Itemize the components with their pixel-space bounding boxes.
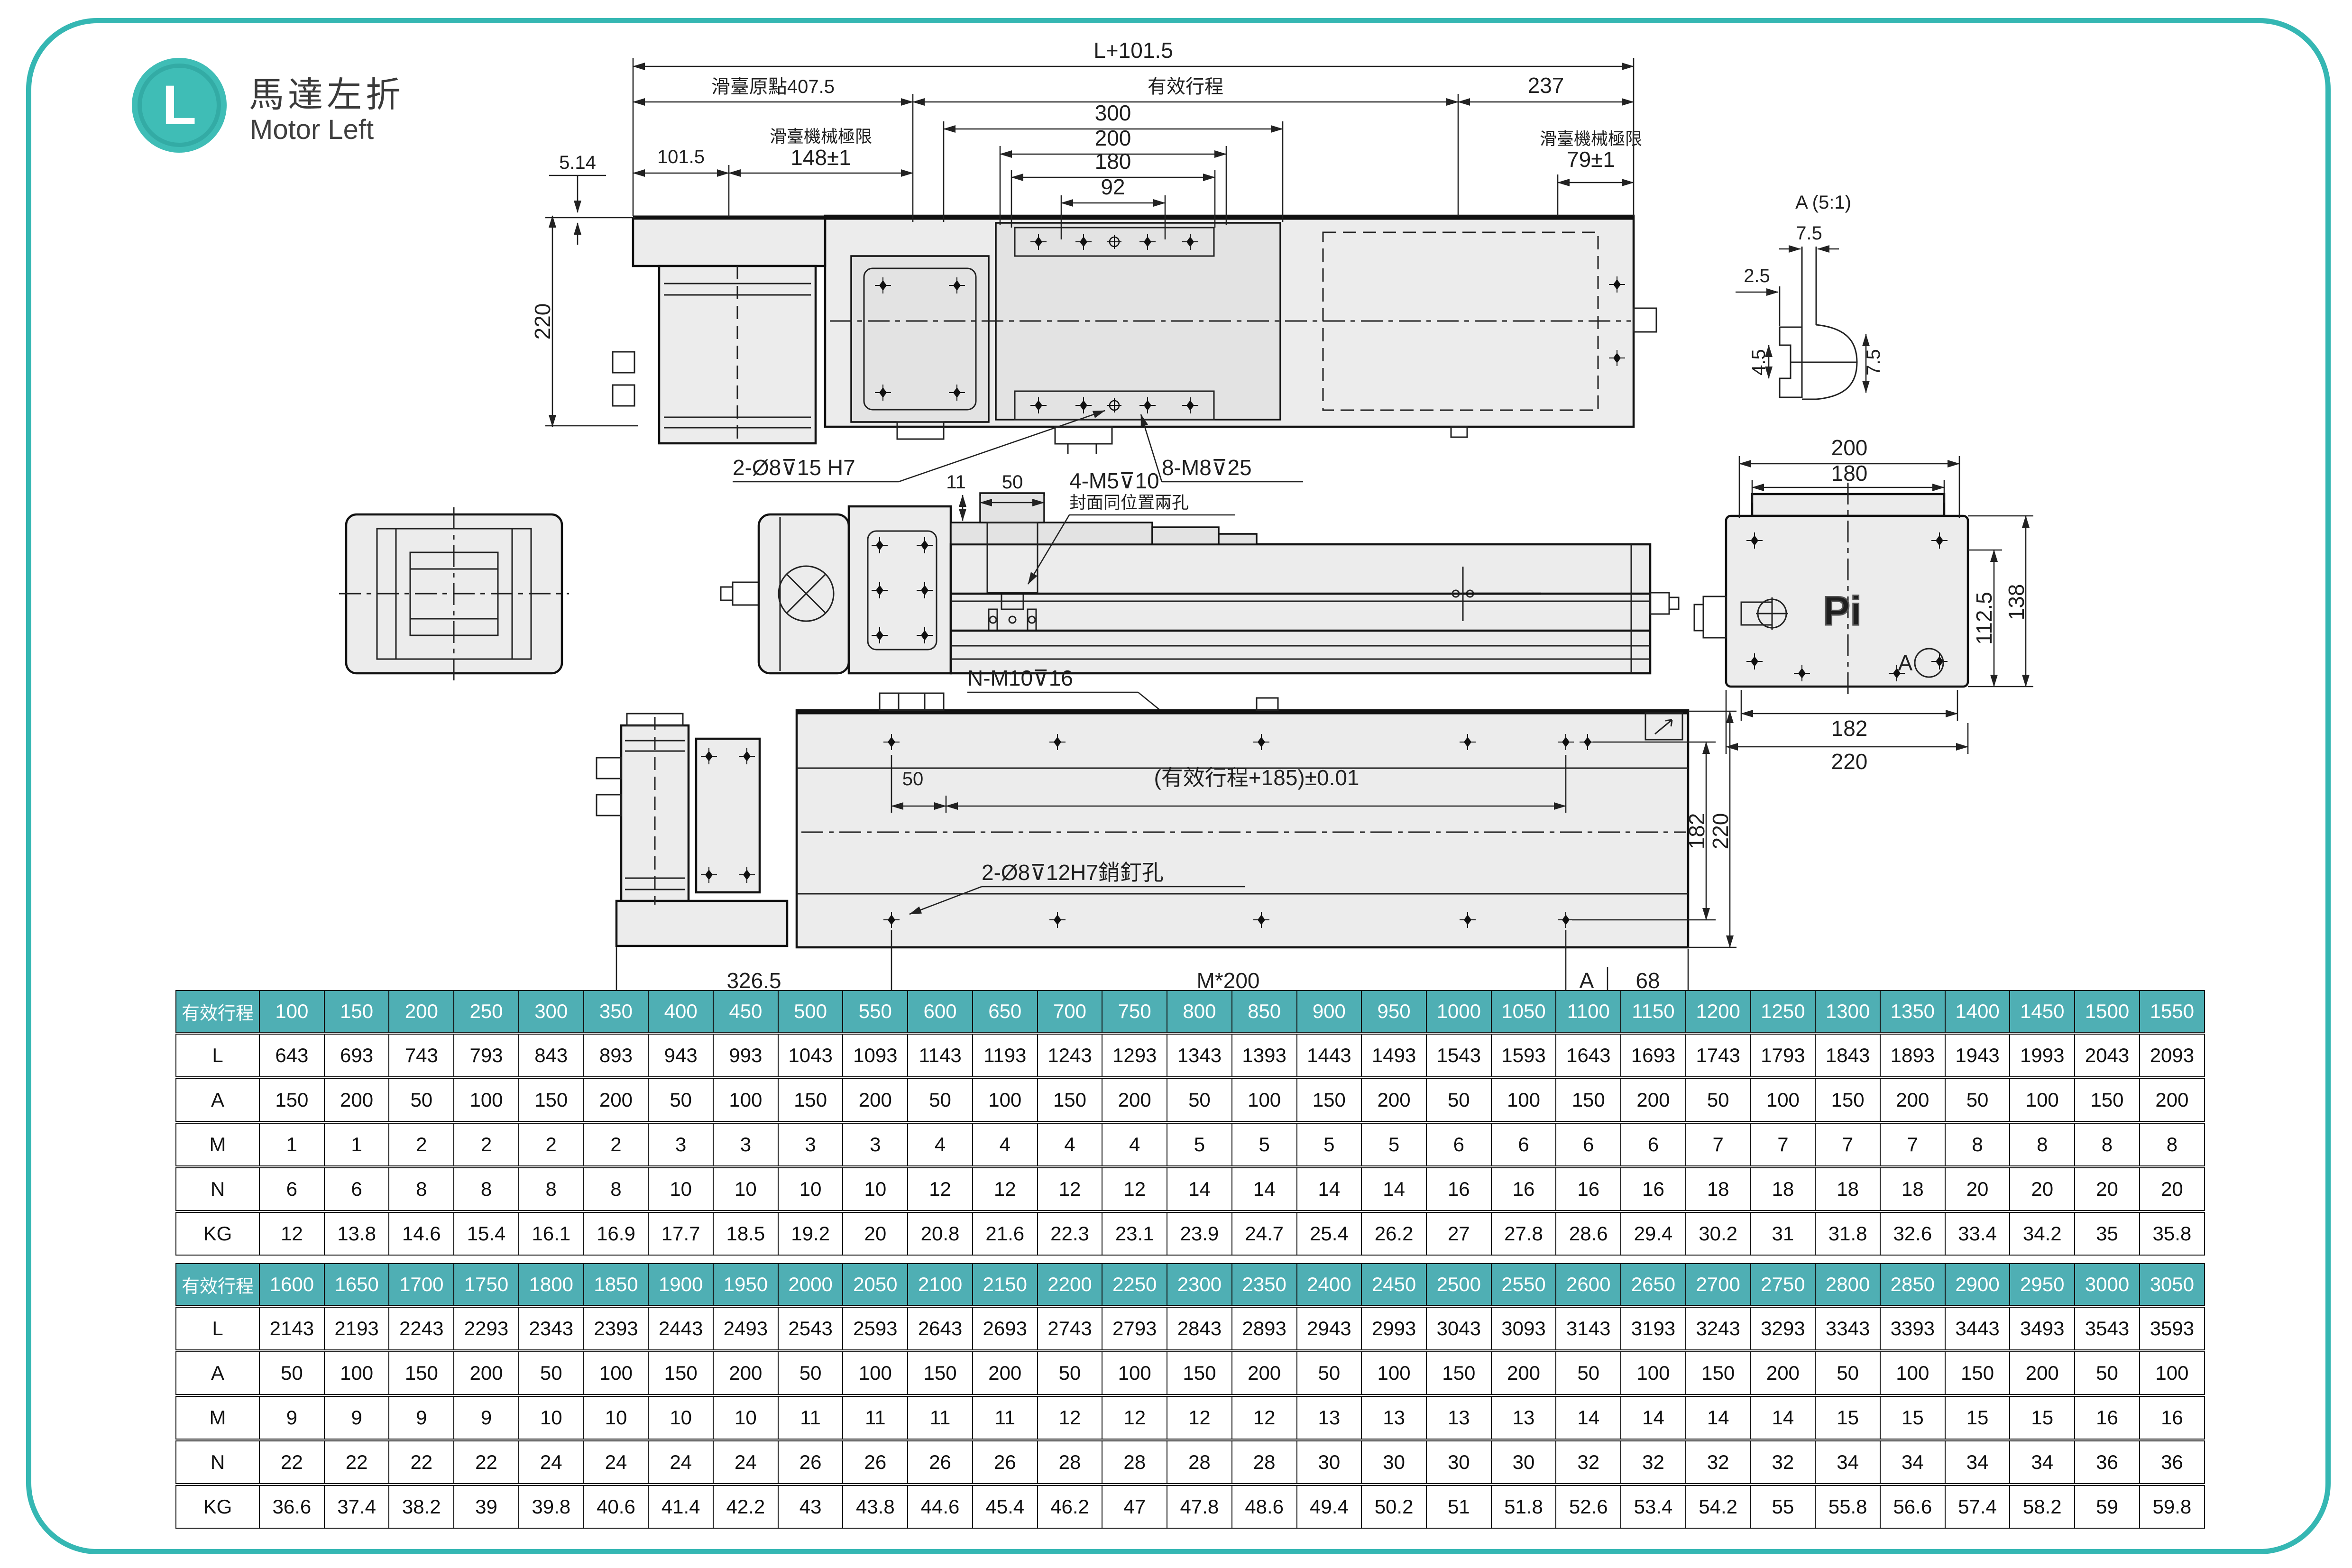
table-cell: 1593: [1491, 1033, 1556, 1078]
top-view: L+101.5 滑臺原點407.5 有效行程 237 300 200 180 9…: [530, 38, 1656, 482]
table-cell: 1443: [1297, 1033, 1362, 1078]
row-label: KG: [176, 1211, 259, 1255]
stroke-column-header: 1050: [1491, 990, 1556, 1033]
stroke-column-header: 1700: [389, 1264, 454, 1306]
end-dim-180: 180: [1831, 461, 1868, 486]
table-cell: 150: [259, 1078, 324, 1122]
table-cell: 43.8: [843, 1485, 908, 1528]
table-cell: 26: [973, 1440, 1038, 1485]
stroke-column-header: 850: [1232, 990, 1297, 1033]
table-cell: 10: [648, 1395, 713, 1440]
stroke-column-header: 100: [259, 990, 324, 1033]
table-cell: 1193: [973, 1033, 1038, 1078]
table-cell: 3493: [2010, 1306, 2075, 1351]
table-cell: 18: [1815, 1167, 1880, 1211]
stroke-column-header: 400: [648, 990, 713, 1033]
table-cell: 25.4: [1297, 1211, 1362, 1255]
table-cell: 20: [2010, 1167, 2075, 1211]
table-cell: 23.9: [1167, 1211, 1232, 1255]
table-cell: 150: [1426, 1351, 1491, 1395]
stroke-table-2: 有效行程160016501700175018001850190019502000…: [175, 1263, 2205, 1529]
table-cell: 12: [908, 1167, 973, 1211]
table-cell: 34: [1945, 1440, 2010, 1485]
label-cover-note: 封面同位置兩孔: [1069, 493, 1189, 512]
stroke-column-header: 1250: [1751, 990, 1816, 1033]
table-cell: 32: [1621, 1440, 1686, 1485]
table-cell: 50: [1815, 1351, 1880, 1395]
table-cell: 24.7: [1232, 1211, 1297, 1255]
table-cell: 993: [713, 1033, 778, 1078]
table-cell: 30.2: [1686, 1211, 1751, 1255]
stroke-column-header: 900: [1297, 990, 1362, 1033]
table-cell: 100: [843, 1351, 908, 1395]
table-cell: 200: [1232, 1351, 1297, 1395]
table-cell: 50: [389, 1078, 454, 1122]
dim-180: 180: [1095, 149, 1131, 174]
table-cell: 200: [1621, 1078, 1686, 1122]
table-cell: 13: [1361, 1395, 1426, 1440]
table-cell: 2843: [1167, 1306, 1232, 1351]
detail-a-title: A (5:1): [1795, 192, 1851, 213]
table-cell: 150: [519, 1078, 584, 1122]
label-pin-holes-bottom: 2-Ø8⊽12H7銷釘孔: [982, 860, 1164, 885]
table-cell: 50: [648, 1078, 713, 1122]
table-cell: 13: [1297, 1395, 1362, 1440]
table-cell: 6: [324, 1167, 389, 1211]
table-cell: 10: [713, 1167, 778, 1211]
table-cell: 39.8: [519, 1485, 584, 1528]
stroke-column-header: 2900: [1945, 1264, 2010, 1306]
table-cell: 50: [519, 1351, 584, 1395]
table-cell: 26: [843, 1440, 908, 1485]
table-cell: 1793: [1751, 1033, 1816, 1078]
table-cell: 1093: [843, 1033, 908, 1078]
stroke-column-header: 1850: [584, 1264, 649, 1306]
table-cell: 2: [584, 1122, 649, 1167]
limit-label-right: 滑臺機械極限: [1540, 129, 1642, 148]
dim-effective-stroke: 有效行程: [1148, 76, 1223, 97]
table-cell: 2193: [324, 1306, 389, 1351]
table-cell: 643: [259, 1033, 324, 1078]
table-cell: 27: [1426, 1211, 1491, 1255]
table-cell: 14: [1167, 1167, 1232, 1211]
table-cell: 2443: [648, 1306, 713, 1351]
table-cell: 8: [2075, 1122, 2140, 1167]
stroke-column-header: 950: [1361, 990, 1426, 1033]
table-cell: 16: [2140, 1395, 2205, 1440]
table-cell: 8: [454, 1167, 519, 1211]
end-dim-200: 200: [1831, 435, 1868, 460]
table-cell: 15: [1815, 1395, 1880, 1440]
table-cell: 15: [2010, 1395, 2075, 1440]
table-cell: 100: [1361, 1351, 1426, 1395]
table-row: L214321932243229323432393244324932543259…: [176, 1306, 2205, 1351]
table-cell: 7: [1815, 1122, 1880, 1167]
table-row: L643693743793843893943993104310931143119…: [176, 1033, 2205, 1078]
table-cell: 18: [1686, 1167, 1751, 1211]
table-cell: 2943: [1297, 1306, 1362, 1351]
table-cell: 200: [584, 1078, 649, 1122]
table-cell: 21.6: [973, 1211, 1038, 1255]
stroke-column-header: 1650: [324, 1264, 389, 1306]
table-cell: 100: [1621, 1351, 1686, 1395]
table-cell: 11: [908, 1395, 973, 1440]
table-cell: 6: [1621, 1122, 1686, 1167]
table-cell: 100: [973, 1078, 1038, 1122]
table-cell: 9: [259, 1395, 324, 1440]
table-cell: 35.8: [2140, 1211, 2205, 1255]
table-cell: 3593: [2140, 1306, 2205, 1351]
table-cell: 40.6: [584, 1485, 649, 1528]
table-cell: 200: [2010, 1351, 2075, 1395]
label-screw-holes: 8-M8⊽25: [1162, 455, 1252, 480]
table-cell: 50: [1945, 1078, 2010, 1122]
stroke-column-header: 2950: [2010, 1264, 2075, 1306]
table-cell: 200: [324, 1078, 389, 1122]
table-cell: 30: [1361, 1440, 1426, 1485]
table-cell: 50.2: [1361, 1485, 1426, 1528]
table-cell: 39: [454, 1485, 519, 1528]
stroke-column-header: 2600: [1556, 1264, 1621, 1306]
table-cell: 6: [259, 1167, 324, 1211]
table-cell: 47: [1102, 1485, 1167, 1528]
table-cell: 57.4: [1945, 1485, 2010, 1528]
table-cell: 3343: [1815, 1306, 1880, 1351]
stroke-column-header: 2750: [1751, 1264, 1816, 1306]
detail-dim-2-5: 2.5: [1744, 266, 1770, 286]
table-cell: 28: [1232, 1440, 1297, 1485]
stroke-column-header: 800: [1167, 990, 1232, 1033]
table-cell: 150: [2075, 1078, 2140, 1122]
table-cell: 3093: [1491, 1306, 1556, 1351]
table-cell: 100: [1751, 1078, 1816, 1122]
motor-end-view: [339, 507, 569, 680]
table-cell: 3: [648, 1122, 713, 1167]
detail-a: A (5:1) 7.5 2.5 4.5 7.5: [1736, 192, 1884, 399]
table-cell: 893: [584, 1033, 649, 1078]
motor-bracket-bottom: [696, 739, 760, 892]
table-cell: 100: [1232, 1078, 1297, 1122]
stroke-column-header: 2300: [1167, 1264, 1232, 1306]
stroke-column-header: 500: [778, 990, 843, 1033]
table-cell: 22: [324, 1440, 389, 1485]
table-cell: 150: [1556, 1078, 1621, 1122]
row-label: M: [176, 1122, 259, 1167]
table-cell: 6: [1556, 1122, 1621, 1167]
table-cell: 1143: [908, 1033, 973, 1078]
table-cell: 37.4: [324, 1485, 389, 1528]
stroke-column-header: 1200: [1686, 990, 1751, 1033]
table-cell: 16: [1491, 1167, 1556, 1211]
table-cell: 11: [973, 1395, 1038, 1440]
dim-slide-origin: 滑臺原點407.5: [711, 76, 835, 97]
table-cell: 38.2: [389, 1485, 454, 1528]
table-cell: 54.2: [1686, 1485, 1751, 1528]
end-dim-182: 182: [1831, 716, 1868, 741]
table-cell: 36: [2075, 1440, 2140, 1485]
table-cell: 150: [1038, 1078, 1102, 1122]
table-cell: 11: [778, 1395, 843, 1440]
stroke-column-header: 2700: [1686, 1264, 1751, 1306]
table-cell: 20: [2140, 1167, 2205, 1211]
stroke-column-header: 2050: [843, 1264, 908, 1306]
table-cell: 30: [1297, 1440, 1362, 1485]
table-cell: 50: [1167, 1078, 1232, 1122]
table-cell: 50: [1556, 1351, 1621, 1395]
table-cell: 18.5: [713, 1211, 778, 1255]
table-cell: 150: [778, 1078, 843, 1122]
table-cell: 5: [1167, 1122, 1232, 1167]
table-cell: 3043: [1426, 1306, 1491, 1351]
table-cell: 2093: [2140, 1033, 2205, 1078]
table-cell: 100: [2140, 1351, 2205, 1395]
motor-flange: [633, 219, 825, 266]
table-cell: 9: [454, 1395, 519, 1440]
table-cell: 3193: [1621, 1306, 1686, 1351]
stroke-column-header: 2250: [1102, 1264, 1167, 1306]
table-cell: 20: [2075, 1167, 2140, 1211]
stroke-header-label: 有效行程: [176, 990, 259, 1033]
table-cell: 100: [454, 1078, 519, 1122]
table-cell: 100: [1102, 1351, 1167, 1395]
detail-dim-4-5: 4.5: [1748, 349, 1769, 376]
stroke-column-header: 1350: [1880, 990, 1945, 1033]
stroke-column-header: 1800: [519, 1264, 584, 1306]
table-cell: 4: [973, 1122, 1038, 1167]
pi-logo: Pi: [1823, 588, 1861, 634]
table-cell: 16: [1426, 1167, 1491, 1211]
bottom-view: N-M10⊽16 50 (有效行程+185)±0.01: [597, 666, 1736, 1006]
stroke-column-header: 1300: [1815, 990, 1880, 1033]
table-cell: 50: [908, 1078, 973, 1122]
table-cell: 1293: [1102, 1033, 1167, 1078]
table-cell: 100: [324, 1351, 389, 1395]
table-cell: 34.2: [2010, 1211, 2075, 1255]
table-cell: 10: [648, 1167, 713, 1211]
dim-50-mid: 50: [1002, 472, 1023, 493]
table-cell: 46.2: [1038, 1485, 1102, 1528]
table-cell: 10: [584, 1395, 649, 1440]
table-cell: 16.9: [584, 1211, 649, 1255]
table-cell: 16: [2075, 1395, 2140, 1440]
table-cell: 12: [259, 1211, 324, 1255]
table-cell: 1843: [1815, 1033, 1880, 1078]
stroke-column-header: 250: [454, 990, 519, 1033]
table-cell: 20: [1945, 1167, 2010, 1211]
stroke-column-header: 1150: [1621, 990, 1686, 1033]
table-cell: 3243: [1686, 1306, 1751, 1351]
table-cell: 3: [843, 1122, 908, 1167]
dim-overall-length: L+101.5: [1093, 38, 1173, 63]
table-cell: 8: [1945, 1122, 2010, 1167]
dim-79: 79±1: [1567, 147, 1615, 172]
table-cell: 14: [1556, 1395, 1621, 1440]
table-cell: 18: [1751, 1167, 1816, 1211]
detail-a-marker: A: [1898, 651, 1913, 675]
table-cell: 5: [1297, 1122, 1362, 1167]
table-cell: 51.8: [1491, 1485, 1556, 1528]
stroke-header-label: 有效行程: [176, 1264, 259, 1306]
dim-5-14: 5.14: [559, 152, 596, 173]
table-cell: 55.8: [1815, 1485, 1880, 1528]
table-cell: 55: [1751, 1485, 1816, 1528]
table-cell: 2393: [584, 1306, 649, 1351]
table-cell: 12: [1232, 1395, 1297, 1440]
table-cell: 2: [519, 1122, 584, 1167]
table-cell: 2893: [1232, 1306, 1297, 1351]
stroke-column-header: 2150: [973, 1264, 1038, 1306]
stroke-column-header: 2800: [1815, 1264, 1880, 1306]
table-cell: 8: [2140, 1122, 2205, 1167]
table-cell: 32: [1751, 1440, 1816, 1485]
rail-body: [951, 544, 1650, 673]
table-cell: 50: [1686, 1078, 1751, 1122]
table-cell: 1493: [1361, 1033, 1426, 1078]
table-cell: 1993: [2010, 1033, 2075, 1078]
table-cell: 28.6: [1556, 1211, 1621, 1255]
table-cell: 150: [389, 1351, 454, 1395]
table-cell: 18: [1880, 1167, 1945, 1211]
table-cell: 28: [1038, 1440, 1102, 1485]
table-cell: 11: [843, 1395, 908, 1440]
table-cell: 17.7: [648, 1211, 713, 1255]
table-cell: 22: [259, 1440, 324, 1485]
dim-300: 300: [1095, 101, 1131, 125]
table-cell: 2343: [519, 1306, 584, 1351]
stroke-column-header: 2650: [1621, 1264, 1686, 1306]
row-label: N: [176, 1440, 259, 1485]
table-cell: 42.2: [713, 1485, 778, 1528]
table-cell: 27.8: [1491, 1211, 1556, 1255]
table-cell: 59: [2075, 1485, 2140, 1528]
stroke-column-header: 3050: [2140, 1264, 2205, 1306]
dim-237: 237: [1528, 73, 1564, 98]
table-cell: 15: [1945, 1395, 2010, 1440]
table-cell: 24: [713, 1440, 778, 1485]
table-cell: 48.6: [1232, 1485, 1297, 1528]
table-cell: 2493: [713, 1306, 778, 1351]
table-cell: 200: [1880, 1078, 1945, 1122]
stroke-column-header: 2100: [908, 1264, 973, 1306]
table-cell: 200: [1751, 1351, 1816, 1395]
stroke-table-1: 有效行程100150200250300350400450500550600650…: [175, 990, 2205, 1256]
table-cell: 1343: [1167, 1033, 1232, 1078]
table-row: N222222222424242426262626282828283030303…: [176, 1440, 2205, 1485]
label-n-m10: N-M10⊽16: [967, 666, 1073, 690]
table-cell: 1743: [1686, 1033, 1751, 1078]
table-cell: 20.8: [908, 1211, 973, 1255]
stroke-column-header: 550: [843, 990, 908, 1033]
table-cell: 12: [1102, 1167, 1167, 1211]
table-cell: 50: [2075, 1351, 2140, 1395]
table-cell: 1543: [1426, 1033, 1491, 1078]
dim-200: 200: [1095, 126, 1131, 150]
bottom-dim-182: 182: [1684, 813, 1709, 850]
table-cell: 5: [1361, 1122, 1426, 1167]
row-label: A: [176, 1078, 259, 1122]
stroke-column-header: 150: [324, 990, 389, 1033]
table-cell: 4: [1102, 1122, 1167, 1167]
table-cell: 13: [1491, 1395, 1556, 1440]
stroke-column-header: 1100: [1556, 990, 1621, 1033]
end-view: Pi A 200 180 112.5 138 182 220: [1694, 435, 2033, 774]
table-cell: 100: [1880, 1351, 1945, 1395]
table-cell: 12: [1102, 1395, 1167, 1440]
stroke-column-header: 2400: [1297, 1264, 1362, 1306]
table-cell: 28: [1102, 1440, 1167, 1485]
table-cell: 34: [1880, 1440, 1945, 1485]
table-cell: 12: [1038, 1395, 1102, 1440]
table-cell: 1243: [1038, 1033, 1102, 1078]
table-cell: 1: [324, 1122, 389, 1167]
stroke-column-header: 1750: [454, 1264, 519, 1306]
table-cell: 200: [713, 1351, 778, 1395]
table-cell: 3393: [1880, 1306, 1945, 1351]
table-cell: 20: [843, 1211, 908, 1255]
table-cell: 32.6: [1880, 1211, 1945, 1255]
row-label: M: [176, 1395, 259, 1440]
table-cell: 200: [1102, 1078, 1167, 1122]
table-cell: 150: [1297, 1078, 1362, 1122]
table-cell: 843: [519, 1033, 584, 1078]
table-cell: 58.2: [2010, 1485, 2075, 1528]
carriage-block: [980, 493, 1044, 523]
table-cell: 53.4: [1621, 1485, 1686, 1528]
motor-bracket: [759, 514, 849, 673]
table-cell: 44.6: [908, 1485, 973, 1528]
dim-148: 148±1: [790, 145, 851, 170]
bottom-dim-pitch: (有效行程+185)±0.01: [1154, 765, 1359, 790]
row-label: A: [176, 1351, 259, 1395]
stroke-column-header: 650: [973, 990, 1038, 1033]
table-cell: 200: [454, 1351, 519, 1395]
stroke-column-header: 2550: [1491, 1264, 1556, 1306]
stroke-column-header: 350: [584, 990, 649, 1033]
table-row: A150200501001502005010015020050100150200…: [176, 1078, 2205, 1122]
dim-92: 92: [1101, 174, 1125, 199]
detail-dim-7-5-top: 7.5: [1796, 223, 1822, 244]
stroke-column-header: 200: [389, 990, 454, 1033]
stroke-column-header: 1450: [2010, 990, 2075, 1033]
table-row: M112222333344445555666677778888: [176, 1122, 2205, 1167]
table-cell: 15: [1880, 1395, 1945, 1440]
table-cell: 10: [713, 1395, 778, 1440]
table-cell: 6: [1491, 1122, 1556, 1167]
table-cell: 26: [778, 1440, 843, 1485]
table-cell: 41.4: [648, 1485, 713, 1528]
gearbox-flange: [851, 256, 989, 422]
table-cell: 743: [389, 1033, 454, 1078]
table-cell: 34: [2010, 1440, 2075, 1485]
table-cell: 4: [908, 1122, 973, 1167]
table-cell: 12: [973, 1167, 1038, 1211]
table-cell: 150: [1945, 1351, 2010, 1395]
table-cell: 1943: [1945, 1033, 2010, 1078]
table-cell: 793: [454, 1033, 519, 1078]
table-cell: 2643: [908, 1306, 973, 1351]
bottom-dim-220: 220: [1708, 813, 1733, 850]
table-cell: 10: [778, 1167, 843, 1211]
stroke-column-header: 450: [713, 990, 778, 1033]
table-cell: 9: [389, 1395, 454, 1440]
label-4-m5: 4-M5⊽10: [1069, 468, 1159, 493]
stroke-column-header: 1900: [648, 1264, 713, 1306]
table-cell: 2243: [389, 1306, 454, 1351]
table-cell: 200: [1491, 1351, 1556, 1395]
table-cell: 2: [454, 1122, 519, 1167]
table-cell: 1393: [1232, 1033, 1297, 1078]
table-cell: 14: [1232, 1167, 1297, 1211]
